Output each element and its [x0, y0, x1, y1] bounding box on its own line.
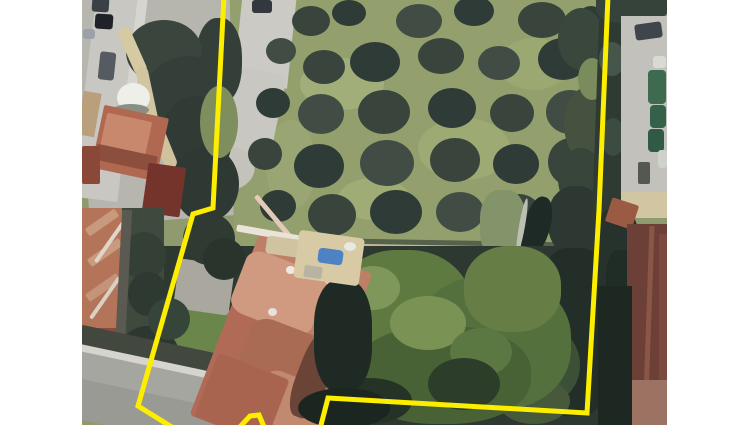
olive-tree [428, 88, 476, 128]
parked-van [98, 51, 117, 81]
parked-car [252, 0, 272, 13]
olive-tree [436, 192, 484, 232]
brown-roof-light-bottom [630, 380, 667, 425]
chimney [268, 308, 277, 316]
scene-layer [82, 0, 667, 425]
aerial-screenshot [0, 0, 750, 425]
olive-tree [478, 46, 520, 80]
olive-tree [248, 138, 282, 170]
villa-shadow [314, 280, 372, 392]
olive-tree [303, 50, 345, 84]
olive-tree [266, 38, 296, 64]
olive-tree [430, 138, 480, 182]
tree-shadow [428, 358, 500, 410]
olive-tree [298, 94, 344, 134]
villa-shadow [298, 388, 390, 425]
parked-car [653, 56, 666, 68]
parked-car [92, 0, 110, 13]
olive-tree [418, 38, 464, 74]
olive-tree [358, 90, 410, 134]
olive-tree [493, 144, 539, 184]
covered-car [650, 105, 666, 128]
olive-tree [308, 194, 356, 236]
grass-patch [200, 86, 238, 158]
shed [638, 162, 650, 184]
olive-tree [370, 190, 422, 234]
terrace-object [344, 242, 356, 251]
parked-car [94, 13, 113, 29]
tree-canopy [148, 298, 190, 340]
olive-tree [350, 42, 400, 82]
olive-tree [292, 6, 330, 36]
tree-canopy [464, 246, 561, 332]
olive-tree [490, 94, 534, 132]
left-margin [0, 0, 82, 425]
parked-car [83, 29, 95, 39]
dark-red-building [82, 146, 100, 184]
aerial-photo [82, 0, 667, 425]
tree-canopy [203, 238, 245, 280]
olive-tree [360, 140, 414, 186]
right-margin [667, 0, 750, 425]
roof-side-shadow [598, 286, 632, 425]
olive-tree [256, 88, 290, 118]
olive-tree [396, 4, 442, 38]
olive-tree [332, 0, 366, 26]
terrace-object [303, 265, 322, 279]
covered-car [648, 70, 666, 104]
covered-car [648, 129, 664, 152]
olive-tree [294, 144, 344, 188]
parked-car [658, 150, 667, 168]
